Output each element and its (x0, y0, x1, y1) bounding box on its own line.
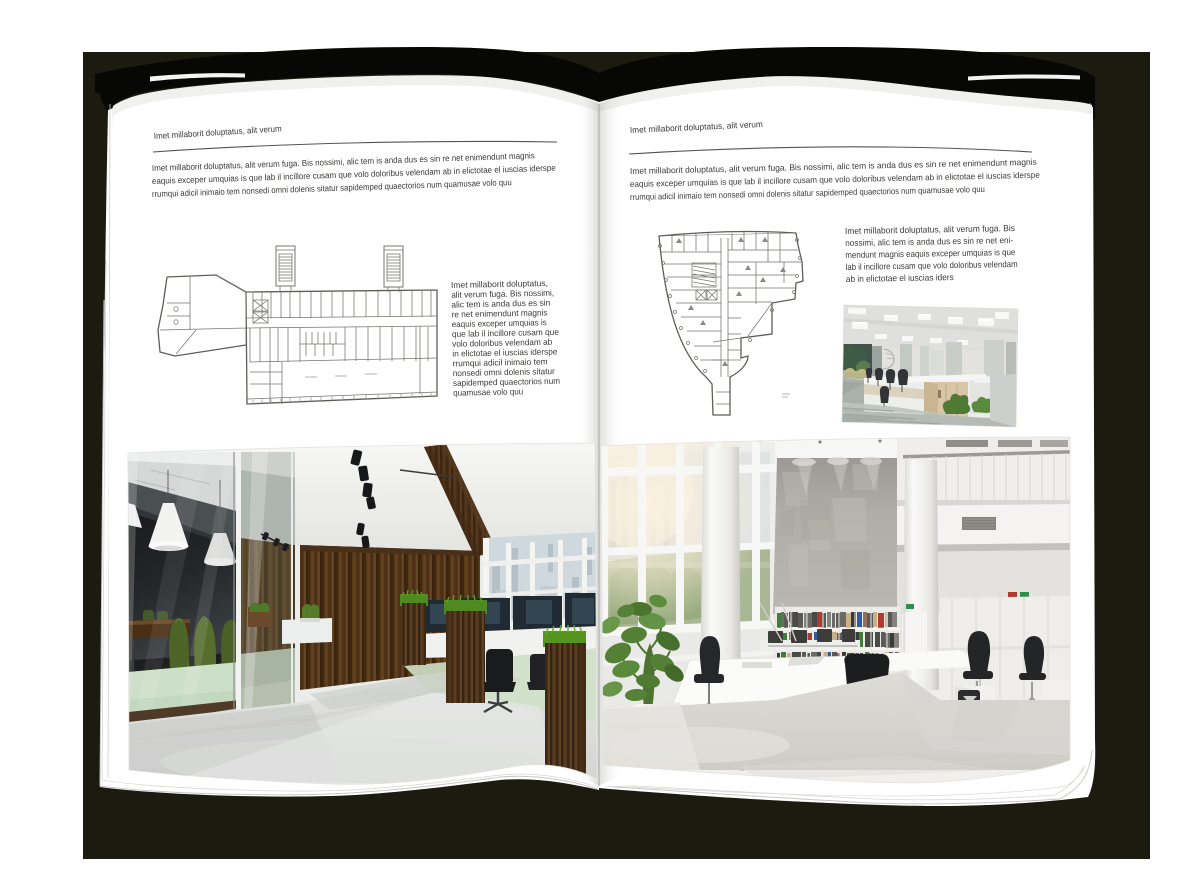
svg-text:ab in elictotae el iuscias ide: ab in elictotae el iuscias iders (846, 272, 955, 284)
svg-text:quamusae volo quu: quamusae volo quu (453, 386, 523, 397)
